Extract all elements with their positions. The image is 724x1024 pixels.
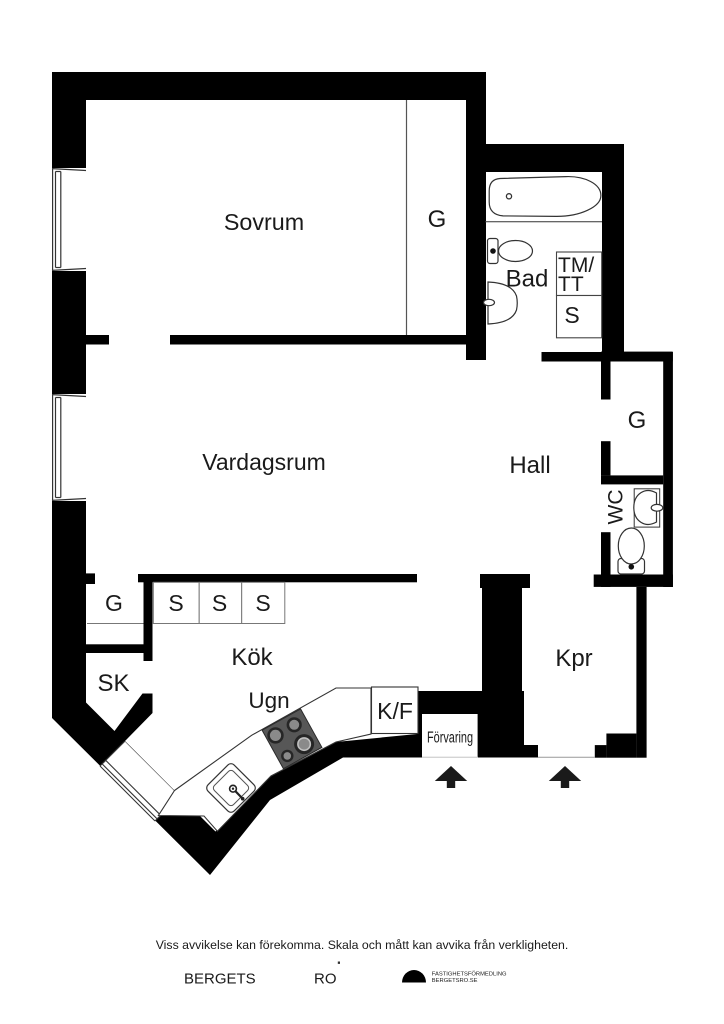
svg-text:G: G [428, 206, 447, 233]
svg-text:TT: TT [558, 273, 584, 296]
svg-text:WC: WC [605, 490, 628, 525]
svg-text:Kök: Kök [231, 644, 273, 671]
svg-text:Viss avvikelse kan förekomma.: Viss avvikelse kan förekomma. Skala och … [156, 938, 569, 952]
svg-text:S: S [564, 302, 579, 328]
svg-text:RO: RO [314, 971, 337, 988]
svg-text:Kpr: Kpr [555, 645, 592, 672]
svg-text:G: G [628, 407, 647, 434]
svg-text:Sovrum: Sovrum [224, 209, 304, 235]
svg-text:S: S [168, 590, 183, 616]
svg-text:FASTIGHETSFÖRMEDLING: FASTIGHETSFÖRMEDLING [432, 970, 507, 977]
svg-text:SK: SK [97, 670, 129, 697]
svg-text:Bad: Bad [506, 266, 549, 293]
svg-text:BERGETS: BERGETS [184, 971, 256, 988]
svg-text:Hall: Hall [509, 452, 550, 479]
svg-text:S: S [212, 590, 227, 616]
svg-text:S: S [255, 590, 270, 616]
svg-text:Förvaring: Förvaring [427, 729, 473, 746]
svg-text:K/F: K/F [377, 698, 413, 724]
svg-text:G: G [105, 590, 123, 616]
svg-text:Vardagsrum: Vardagsrum [202, 449, 326, 475]
svg-text:Ugn: Ugn [248, 688, 289, 713]
svg-text:BERGETSRO.SE: BERGETSRO.SE [432, 978, 478, 984]
